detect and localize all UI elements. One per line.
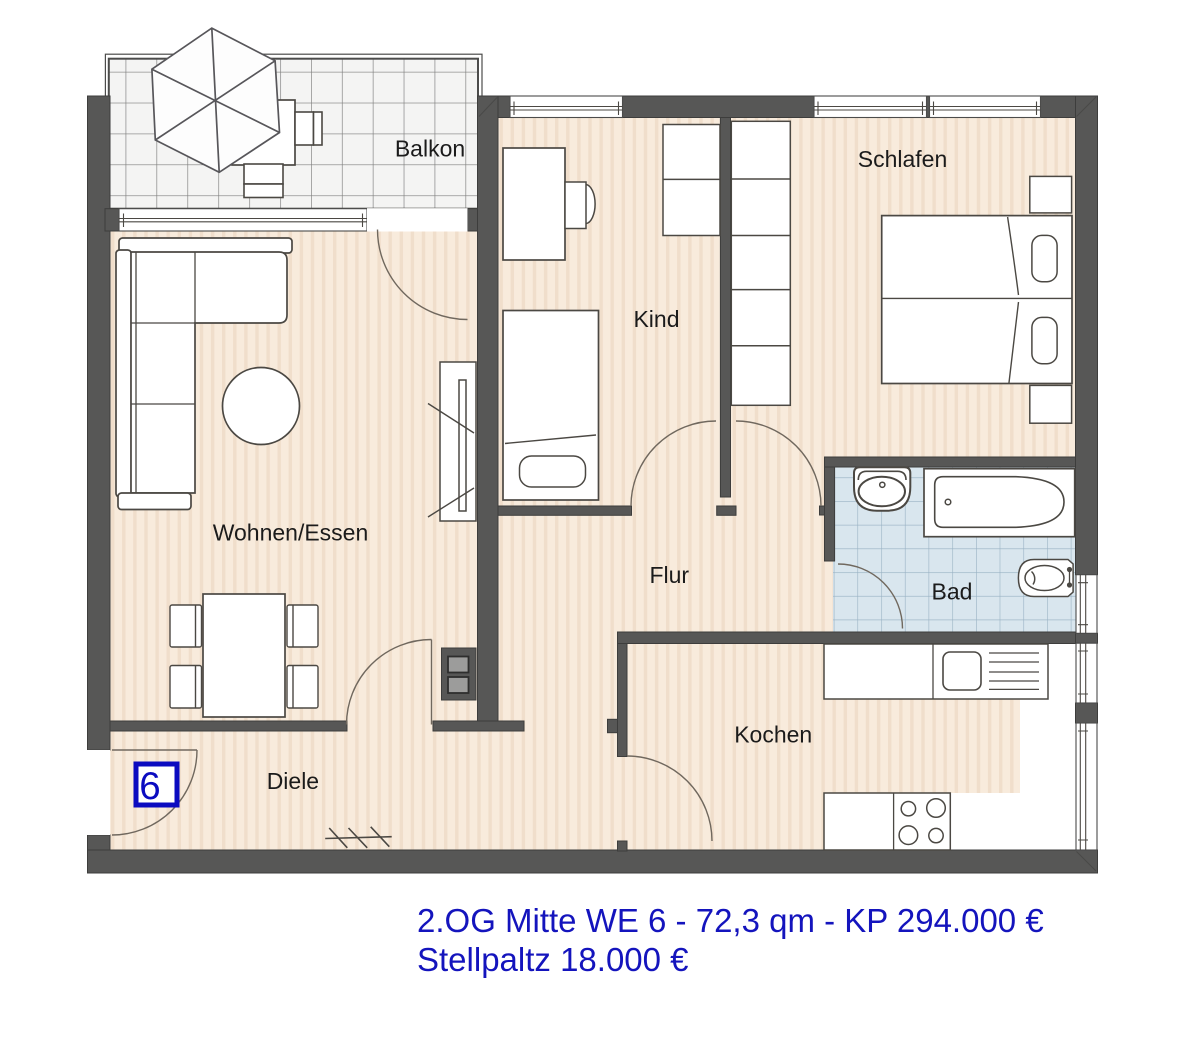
svg-text:6: 6 xyxy=(139,765,160,808)
svg-text:Kind: Kind xyxy=(633,306,679,332)
svg-text:Bad: Bad xyxy=(932,579,973,605)
svg-text:2.OG Mitte WE 6 - 72,3 qm - KP: 2.OG Mitte WE 6 - 72,3 qm - KP 294.000 € xyxy=(417,902,1044,939)
svg-text:Balkon: Balkon xyxy=(395,136,465,162)
svg-text:Wohnen/Essen: Wohnen/Essen xyxy=(213,520,369,546)
svg-text:Diele: Diele xyxy=(267,768,319,794)
svg-text:Kochen: Kochen xyxy=(734,722,812,748)
svg-text:Flur: Flur xyxy=(649,562,689,588)
svg-text:Stellpaltz 18.000 €: Stellpaltz 18.000 € xyxy=(417,941,689,978)
svg-text:Schlafen: Schlafen xyxy=(858,146,948,172)
